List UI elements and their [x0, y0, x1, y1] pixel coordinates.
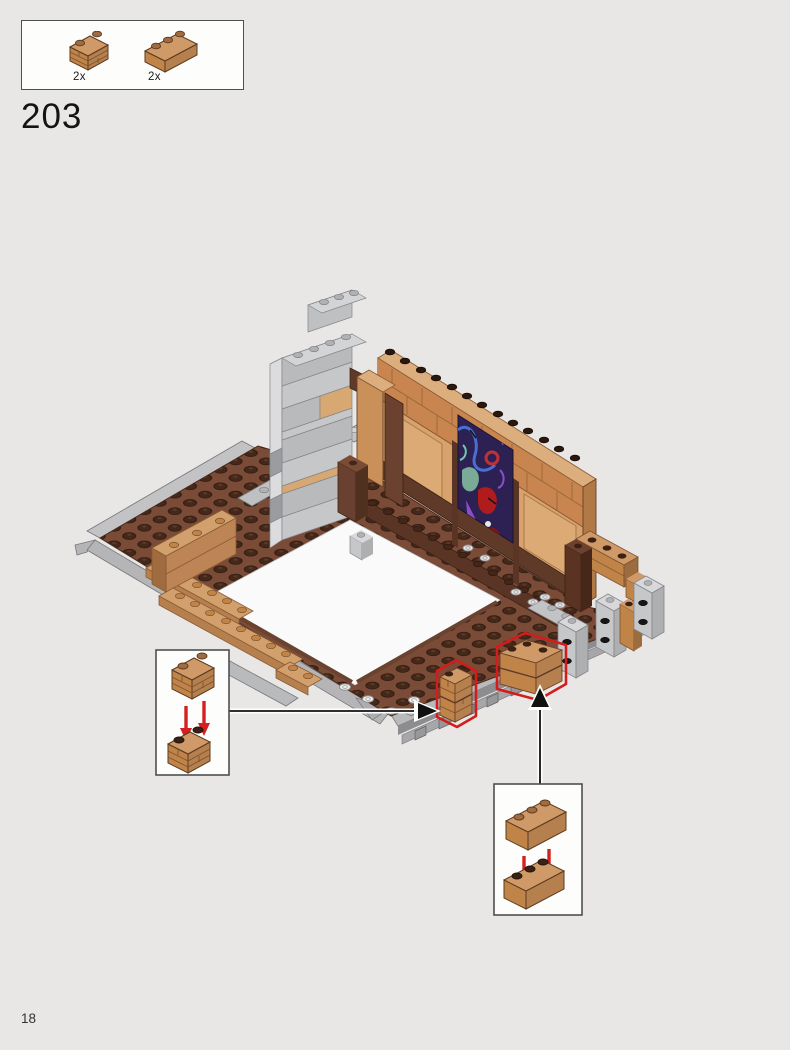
brick-1x2-masonry-icon [64, 31, 114, 73]
part-count-1x3: 2x [148, 71, 161, 83]
callout-box-1x3-stack [494, 784, 582, 915]
parts-panel: 2x 2x [21, 20, 244, 90]
dark-brown-post [338, 455, 368, 522]
part-count-masonry: 2x [73, 71, 86, 83]
brick-1x3-icon [140, 29, 202, 73]
build-illustration [0, 0, 790, 1050]
callout-box-masonry-stack [156, 650, 229, 775]
step-number: 203 [21, 99, 82, 135]
page-number: 18 [21, 1011, 36, 1026]
